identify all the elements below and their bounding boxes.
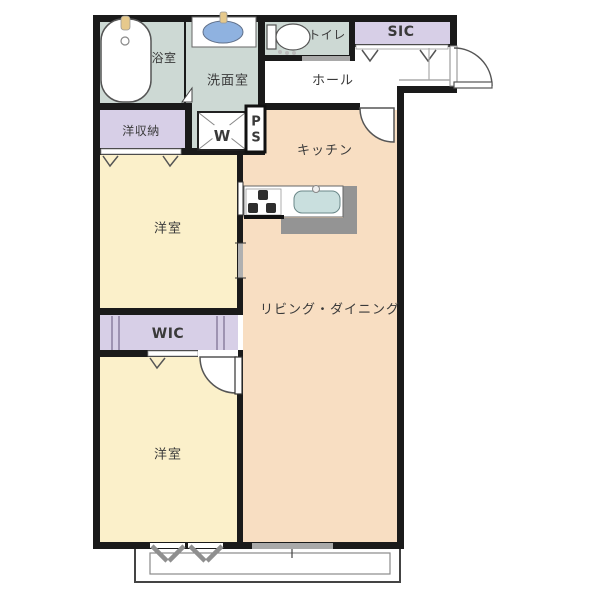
wic-label: WIC (152, 326, 184, 342)
bedroom-upper-sliding-door (238, 243, 243, 278)
ldk-floor (243, 110, 397, 542)
wic-door-track (148, 351, 198, 356)
bathtub-icon (101, 19, 151, 102)
wall-toilet-sic (349, 15, 355, 61)
floor-plan-svg: 浴室 洗面室 トイレ SIC ホール 洋収納 キッチン 洋室 WIC リビング・… (0, 0, 600, 600)
wall-bottom (93, 542, 404, 549)
wall-hall-kitchen (258, 103, 360, 110)
balcony-outline (135, 545, 400, 582)
floor-plan-page: 浴室 洗面室 トイレ SIC ホール 洋収納 キッチン 洋室 WIC リビング・… (0, 0, 600, 600)
entrance-doorway (450, 46, 457, 86)
sic-door-track (356, 45, 448, 49)
toilet-detail (278, 50, 282, 54)
stove-burner-icon (266, 203, 276, 213)
wall-storage-right (185, 103, 192, 155)
wall-top (93, 15, 457, 22)
kitchen-label: キッチン (297, 144, 353, 159)
vanity-basin-icon (203, 21, 243, 43)
kitchen-counter-return (281, 218, 357, 234)
entrance-door-leaf (454, 82, 492, 88)
storage-door-track (101, 149, 181, 154)
bedroom-upper-label: 洋室 (154, 221, 182, 237)
stove-burner-icon (248, 203, 258, 213)
toilet-bowl-icon (276, 24, 310, 50)
bathtub-drain-icon (121, 37, 129, 45)
storage-label: 洋収納 (122, 123, 160, 138)
sic-folding-door-icon (420, 50, 436, 61)
toilet-label: トイレ (308, 28, 346, 42)
kitchen-sink-icon (294, 191, 340, 213)
bathtub-faucet-icon (121, 16, 130, 30)
toilet-detail (285, 51, 289, 55)
entrance-door-swing-icon (454, 48, 492, 86)
pipe-space-label-s: S (251, 131, 260, 146)
wall-right-main (397, 93, 404, 549)
counter-edge-line (244, 215, 284, 219)
kitchen-faucet-icon (313, 186, 320, 193)
bedroom-lower-label: 洋室 (154, 447, 182, 463)
bedroom-lower-door-opening (198, 350, 238, 357)
toilet-detail (292, 51, 296, 55)
toilet-sliding-door (302, 56, 350, 61)
sic-folding-door-icon (362, 50, 378, 61)
pipe-space-label-p: P (251, 115, 261, 130)
washer-label: W (214, 127, 231, 145)
bathroom-label: 浴室 (151, 50, 176, 65)
living-dining-label: リビング・ダイニング (260, 303, 400, 318)
wall-bedroom-upper-right (237, 155, 243, 312)
sic-label: SIC (387, 24, 414, 40)
wall-bath-washroom (184, 17, 186, 105)
wall-wic-top (93, 308, 243, 315)
wall-entrance-bottom (397, 86, 457, 93)
kitchen-side-window (238, 182, 243, 215)
wall-bathroom-bottom (93, 103, 192, 110)
stove-burner-icon (258, 190, 268, 200)
hall-label: ホール (312, 74, 354, 89)
wall-right-upper (450, 15, 457, 48)
wall-left (93, 15, 100, 549)
living-sliding-window (252, 543, 333, 549)
toilet-tank-icon (267, 25, 276, 49)
bedroom-lower-door-leaf (235, 357, 242, 394)
vanity-faucet-icon (220, 12, 227, 23)
washroom-label: 洗面室 (207, 73, 249, 89)
